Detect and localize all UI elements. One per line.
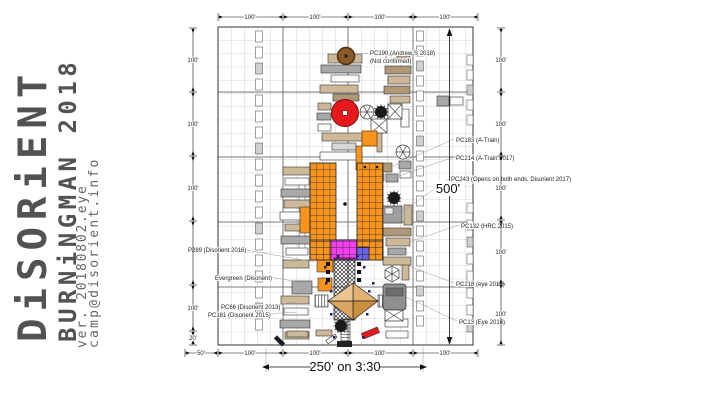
site-plan-drawing: PC190 (Andrew S 2018) (Not confirmed) PC… — [0, 0, 720, 400]
trailer — [321, 65, 361, 73]
tent-rect — [256, 207, 263, 218]
dim-arrow-icon — [499, 151, 502, 155]
label-pc183: PC183 (A-Train) — [456, 138, 499, 144]
tent-rect — [417, 256, 424, 266]
ruler-label: 100' — [309, 351, 320, 357]
tent-rect — [256, 223, 263, 234]
dim-arrow-icon — [191, 87, 194, 91]
ruler-label: 100' — [495, 186, 506, 192]
dim-arrow-icon — [343, 351, 347, 354]
hex-dome — [385, 266, 399, 282]
trailer — [383, 257, 411, 265]
tent-rect — [256, 63, 263, 74]
tent-rect — [417, 121, 424, 131]
trailer — [281, 236, 311, 244]
trailer — [385, 66, 411, 74]
shade-square-1 — [388, 104, 402, 119]
tent-rect — [256, 143, 263, 154]
tent-rect — [256, 287, 263, 298]
tent-rect — [417, 286, 424, 296]
dim-arrow-icon — [191, 222, 194, 226]
label-pc66: PC66 (Disorient 2013) — [221, 305, 280, 311]
ruler-label: 100' — [374, 351, 385, 357]
ruler-label: 100' — [374, 15, 385, 21]
anchor-dot — [325, 282, 328, 285]
tent-rect — [256, 47, 263, 58]
dim-arrow-icon — [278, 351, 282, 354]
label-pc190-note: (Not confirmed) — [370, 59, 411, 65]
trailer — [450, 97, 463, 105]
dim-arrow-icon — [349, 15, 353, 18]
left-wing-ladder — [315, 295, 328, 307]
dim-arrow-icon — [284, 15, 288, 18]
tent-rect — [256, 159, 263, 170]
tent-rect — [417, 316, 424, 326]
geodesic-dome-2 — [396, 145, 410, 159]
trailer — [322, 133, 362, 141]
tent-rect — [417, 31, 424, 41]
box-truck — [383, 206, 402, 223]
ruler-label: 100' — [495, 58, 506, 64]
trailer — [388, 76, 410, 84]
tent-rect — [417, 76, 424, 86]
dim-250ft: 250' on 3:30 — [262, 347, 427, 374]
trailer — [388, 248, 406, 255]
trailer — [281, 296, 309, 304]
orange-booth — [362, 131, 377, 146]
tent-rect — [256, 31, 263, 42]
arrow-left-icon — [262, 364, 269, 369]
tent-rect — [417, 136, 424, 146]
trailer — [332, 143, 356, 150]
label-pc181: PC181 (Disorient 2015) — [208, 313, 271, 319]
tent-rect — [417, 241, 424, 251]
tent-rect — [417, 181, 424, 191]
tent-rect — [256, 175, 263, 186]
trailer — [317, 113, 331, 120]
label-pc13: PC13 (Eye 2016) — [459, 320, 505, 326]
trailer — [280, 320, 310, 328]
dim-arrow-icon — [499, 29, 502, 33]
tent-rect — [256, 111, 263, 122]
tent-rect — [467, 55, 473, 65]
dim-500-label: 500' — [436, 181, 460, 196]
anchor-dot — [362, 336, 365, 339]
trailer — [390, 96, 410, 103]
dim-arrow-icon — [191, 93, 194, 97]
tent-rect — [417, 151, 424, 161]
tree-3 — [335, 320, 347, 332]
trailer — [283, 167, 310, 175]
ruler-label: 20' — [189, 336, 197, 342]
trailer — [284, 308, 308, 315]
label-pc132: PC132 (HRC 2015) — [461, 224, 513, 230]
dim-arrow-icon — [191, 29, 194, 33]
tent-rect — [467, 305, 473, 315]
dim-arrow-icon — [499, 93, 502, 97]
dim-arrow-icon — [191, 151, 194, 155]
trailer — [283, 260, 309, 268]
tent-rect — [467, 288, 473, 298]
camp-map-screenshot: DiSORiENT BURNiNGMAN 2018 ver. 20180802.… — [0, 0, 720, 400]
anchor-dot — [330, 290, 333, 293]
dim-arrow-icon — [284, 351, 288, 354]
dim-arrow-icon — [408, 15, 412, 18]
dim-arrow-icon — [191, 286, 194, 290]
dim-arrow-icon — [219, 351, 223, 354]
tent-rect — [467, 203, 473, 213]
dim-arrow-icon — [408, 351, 412, 354]
ladder-base — [337, 341, 352, 347]
tent-rect — [467, 237, 473, 247]
trailer — [286, 248, 308, 255]
label-pc243: PC243 (Opens on both ends, Disorient 201… — [451, 177, 571, 183]
tent-rect — [467, 254, 473, 264]
tent-rect — [417, 211, 424, 221]
trailer — [292, 281, 312, 294]
tent-rect — [417, 61, 424, 71]
tree-2 — [388, 192, 400, 204]
dim-arrow-icon — [213, 351, 217, 354]
tent-rect — [467, 100, 473, 110]
anchor-dot — [366, 313, 369, 316]
trailer — [383, 228, 411, 236]
tent-rect — [256, 191, 263, 202]
dim-arrow-icon — [414, 351, 418, 354]
trailer — [318, 124, 331, 131]
anchor-dot — [356, 255, 359, 258]
dim-arrow-icon — [499, 87, 502, 91]
dim-arrow-icon — [191, 216, 194, 220]
anchor-dot — [324, 266, 327, 269]
dim-arrow-icon — [499, 215, 502, 219]
anchor-dot — [368, 290, 371, 293]
trailer — [386, 238, 410, 246]
trailer — [400, 171, 411, 178]
courtyard-marker — [343, 202, 347, 206]
dim-arrow-icon — [499, 340, 502, 344]
anchor-dot — [372, 282, 375, 285]
dim-arrow-icon — [191, 157, 194, 161]
trailer — [386, 174, 398, 182]
dim-arrow-icon — [349, 351, 353, 354]
dim-arrow-icon — [219, 15, 223, 18]
ruler-label: 100' — [439, 15, 450, 21]
tent-rect — [256, 79, 263, 90]
trailer — [437, 96, 449, 106]
dim-arrow-icon — [499, 279, 502, 283]
dim-arrow-icon — [343, 15, 347, 18]
tent-rect — [467, 271, 473, 281]
ruler-label: 100' — [187, 58, 198, 64]
tent-rect — [256, 95, 263, 106]
tent-rect — [256, 255, 263, 266]
tree-1 — [375, 106, 387, 118]
tent-rect — [256, 239, 263, 250]
tent-rect — [417, 106, 424, 116]
trailer — [318, 103, 331, 110]
label-evergreen: Evergreen (Disorient) — [215, 276, 272, 282]
trailer — [281, 189, 310, 197]
label-pc218: PC218 (eye 2015) — [456, 282, 505, 288]
trailer — [320, 85, 358, 93]
ruler-label: 100' — [439, 351, 450, 357]
dim-arrow-icon — [191, 326, 194, 330]
label-pc214: PC214 (A-Train 2017) — [456, 156, 514, 162]
ruler-label: 50' — [197, 351, 205, 357]
trailer — [300, 207, 310, 233]
shade-box-south — [385, 310, 403, 321]
trailer — [404, 205, 412, 225]
tent-rect — [417, 271, 424, 281]
trailer — [331, 75, 359, 82]
ruler-label: 100' — [495, 312, 506, 318]
dim-arrow-icon — [186, 351, 190, 354]
anchor-dot — [363, 266, 366, 269]
ruler-label: 100' — [495, 122, 506, 128]
big-truck — [383, 284, 406, 310]
geodesic-dome — [360, 105, 374, 119]
tent-rect — [256, 127, 263, 138]
trailer — [285, 178, 309, 185]
tent-rect — [467, 85, 473, 95]
tent-rect — [256, 319, 263, 330]
anchor-dot — [333, 336, 336, 339]
trailer — [316, 330, 332, 336]
ruler-label: 100' — [244, 15, 255, 21]
dim-250-label: 250' on 3:30 — [309, 359, 380, 374]
ruler-label: 100' — [187, 122, 198, 128]
ruler-label: 100' — [309, 15, 320, 21]
dim-arrow-icon — [278, 15, 282, 18]
tent-rect — [467, 115, 473, 125]
trailer — [287, 331, 308, 337]
anchor-dot — [337, 255, 340, 258]
tent-rect — [417, 166, 424, 176]
anchor-dot — [330, 313, 333, 316]
tent-rect — [417, 91, 424, 101]
trailer — [384, 86, 410, 94]
ruler-label: 100' — [187, 306, 198, 312]
trailer — [399, 161, 411, 169]
dim-arrow-icon — [191, 280, 194, 284]
ruler-label: 100' — [244, 351, 255, 357]
dim-arrow-icon — [473, 15, 477, 18]
tent-rect — [417, 226, 424, 236]
trailer — [386, 331, 408, 338]
label-p289: P289 (Disorient 2016) — [188, 248, 246, 254]
label-pc190: PC190 (Andrew S 2018) — [370, 51, 435, 57]
ruler-label: 100' — [495, 250, 506, 256]
ruler-label: 100' — [187, 186, 198, 192]
dim-arrow-icon — [473, 351, 477, 354]
tent-rect — [467, 70, 473, 80]
arrow-right-icon — [420, 364, 427, 369]
dim-arrow-icon — [414, 15, 418, 18]
